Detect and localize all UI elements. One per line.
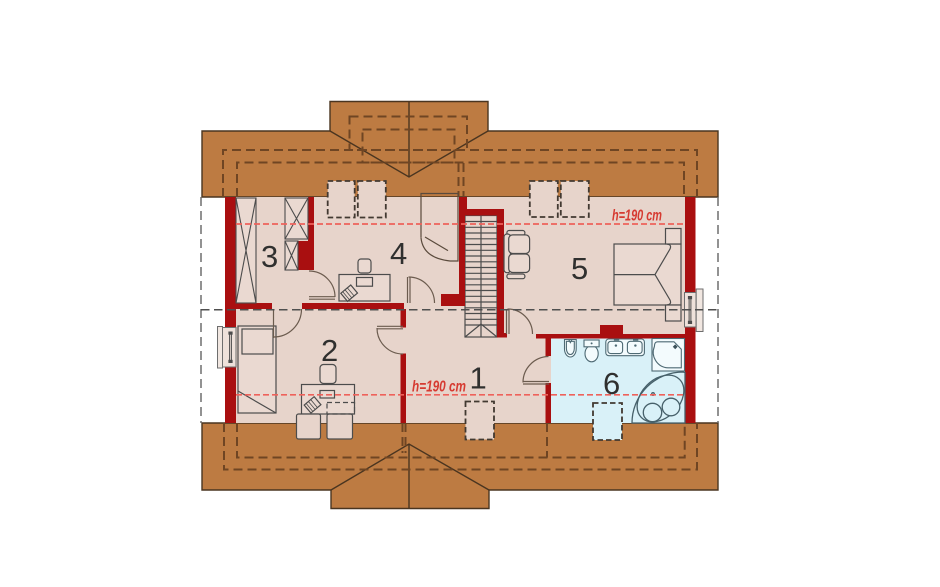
svg-text:1: 1 [470,361,487,396]
svg-text:4: 4 [390,236,407,271]
svg-text:h=190 cm: h=190 cm [412,379,466,396]
svg-text:6: 6 [603,366,620,401]
svg-text:2: 2 [321,333,338,368]
svg-text:h=190 cm: h=190 cm [612,208,662,225]
svg-text:3: 3 [261,239,278,274]
svg-text:5: 5 [571,251,588,286]
